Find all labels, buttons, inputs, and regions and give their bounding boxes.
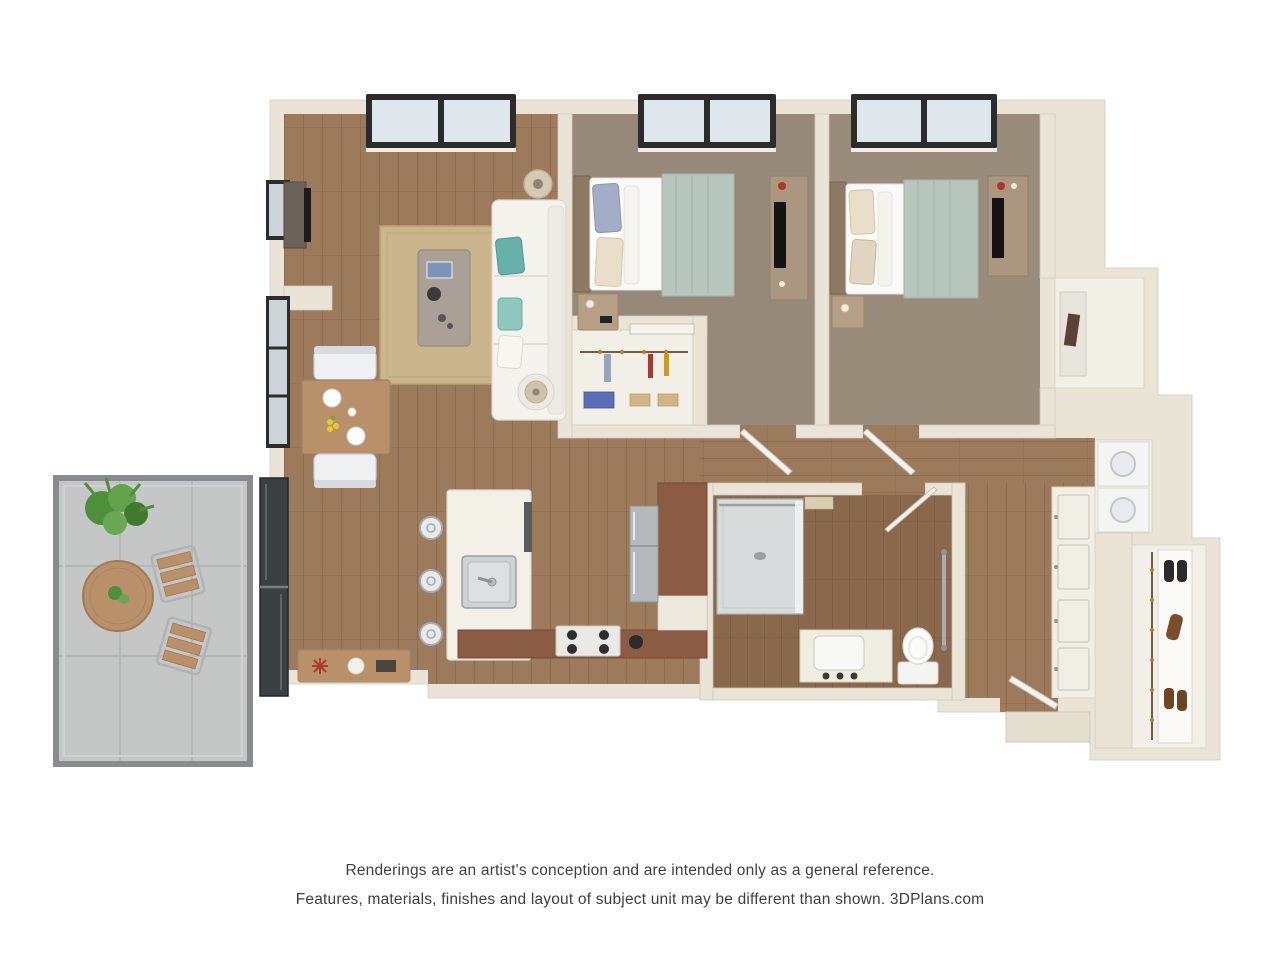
coffee-table: [418, 250, 470, 346]
dishwasher: [524, 502, 532, 552]
vase: [427, 287, 441, 301]
black-shoes: [1164, 560, 1174, 582]
dining-table: [302, 380, 390, 454]
phone: [600, 316, 612, 323]
tv: [992, 198, 1004, 258]
bedroom2-window: [851, 94, 997, 152]
balcony-floor: [54, 476, 252, 766]
kettle: [629, 635, 643, 649]
bathroom-doorway: [862, 483, 925, 495]
living-room-window: [366, 94, 516, 152]
decor-tray: [376, 660, 396, 672]
hall-cabinets: [1052, 487, 1095, 698]
side-table-lamp: [518, 374, 554, 410]
brown-shoes: [1164, 688, 1174, 709]
stool: [420, 623, 442, 645]
entry-step: [1006, 712, 1090, 742]
teal-pillow-2: [498, 298, 522, 330]
shower: [717, 499, 803, 614]
patterned-pillow: [592, 183, 621, 233]
counter-white-section: [658, 596, 707, 630]
nightstand-1: [578, 294, 618, 330]
balcony-sliding-door: [260, 478, 288, 696]
sage-blanket: [662, 174, 734, 296]
dining-chair-1: [314, 346, 376, 380]
bedroom1-closet-interior: [572, 330, 693, 425]
red-vase: [778, 182, 786, 190]
stove: [556, 626, 620, 656]
nightstand-2: [832, 296, 864, 328]
drain: [754, 552, 766, 560]
white-pillow: [497, 335, 524, 369]
headboard: [830, 182, 846, 294]
vanity: [800, 630, 892, 682]
disclaimer-line2: Features, materials, finishes and layout…: [0, 885, 1280, 914]
ceiling-vent: [805, 497, 833, 509]
bed-2: [830, 180, 978, 298]
cream-pillow: [595, 237, 623, 286]
dresser-tv-2: [988, 176, 1028, 276]
dresser-tv-1: [770, 176, 808, 300]
cream-pillow: [849, 189, 875, 234]
bar-stools: [420, 517, 442, 645]
floor-plan-rendering: [0, 0, 1280, 960]
stool: [420, 570, 442, 592]
decor-sphere: [348, 658, 364, 674]
disclaimer: Renderings are an artist's conception an…: [0, 856, 1280, 914]
balcony-table: [83, 561, 153, 631]
bedroom1-window: [638, 94, 776, 152]
stool: [420, 517, 442, 539]
book: [427, 262, 452, 278]
sage-blanket: [904, 180, 978, 298]
shower-curtain: [795, 501, 803, 613]
folded-clothes-blue: [584, 392, 614, 408]
floor-lamp-top: [524, 170, 552, 198]
tv-console: [284, 182, 311, 248]
disclaimer-line1: Renderings are an artist's conception an…: [0, 856, 1280, 885]
screenshot-canvas: Renderings are an artist's conception an…: [0, 0, 1280, 960]
tv: [304, 188, 311, 242]
closet-2-contents: [1060, 292, 1086, 376]
closet-sliding-door: [630, 324, 694, 334]
tv: [774, 202, 786, 268]
tan-pillow: [849, 239, 876, 285]
headboard: [574, 176, 590, 292]
hanging-garment: [604, 354, 611, 382]
red-vase: [997, 182, 1005, 190]
side-window-lower: [266, 296, 290, 448]
bed-1: [574, 174, 734, 296]
refrigerator: [630, 506, 658, 602]
balcony: [54, 476, 252, 766]
plate-2: [347, 427, 365, 445]
teal-pillow-1: [495, 237, 525, 276]
plate-1: [323, 389, 341, 407]
red-decor: [312, 658, 328, 674]
shoe-shelf: [1158, 550, 1192, 743]
dining-chair-2: [314, 454, 376, 488]
entry-bench: [298, 650, 410, 682]
bathroom-sink: [814, 636, 864, 670]
